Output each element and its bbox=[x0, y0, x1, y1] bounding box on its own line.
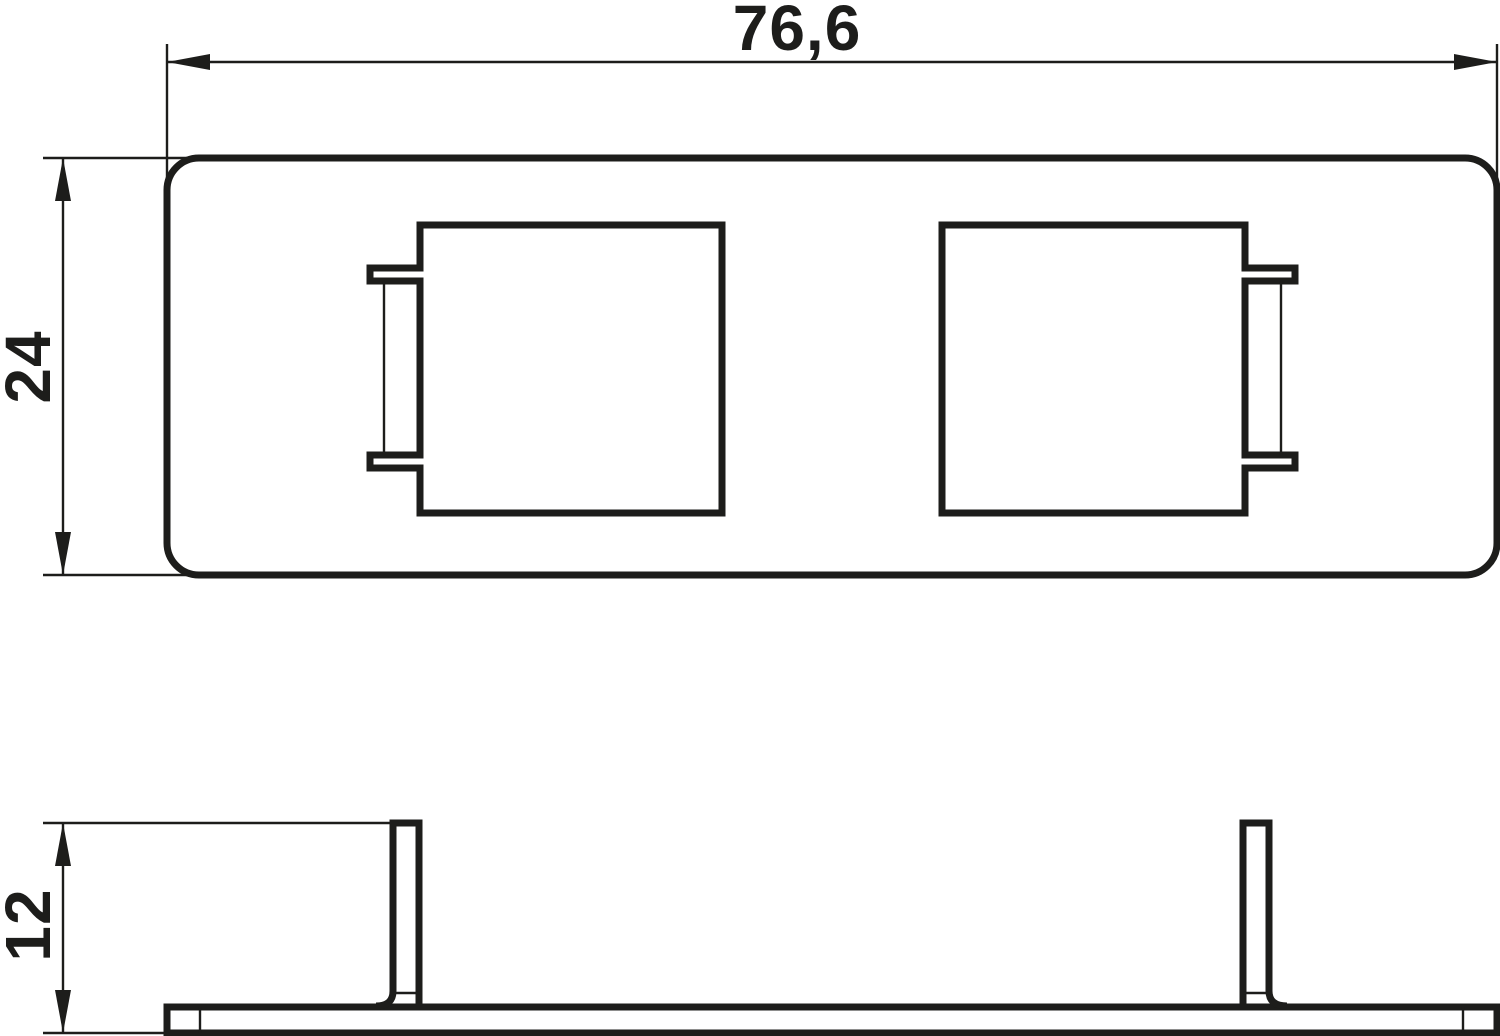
plate-dimension-drawing: 76,6 24 bbox=[0, 0, 1500, 1036]
top-view bbox=[167, 158, 1497, 575]
right-aperture-outline bbox=[942, 225, 1295, 513]
side-base-plate bbox=[167, 1007, 1497, 1033]
height-arrow-top-icon bbox=[55, 158, 71, 201]
width-arrow-right-icon bbox=[1454, 54, 1497, 70]
height-arrow-bottom-icon bbox=[55, 532, 71, 575]
depth-dimension: 12 bbox=[0, 823, 391, 1033]
width-arrow-left-icon bbox=[167, 54, 210, 70]
plate-outline bbox=[167, 158, 1497, 575]
depth-arrow-bottom-icon bbox=[55, 990, 71, 1033]
height-dimension-label: 24 bbox=[0, 330, 64, 403]
technical-drawing-page: 76,6 24 bbox=[0, 0, 1500, 1036]
depth-dimension-label: 12 bbox=[0, 888, 64, 961]
left-aperture-outline bbox=[370, 225, 722, 513]
width-dimension-label: 76,6 bbox=[733, 0, 862, 64]
side-view bbox=[167, 823, 1497, 1033]
depth-arrow-top-icon bbox=[55, 823, 71, 866]
right-latch-tab bbox=[1243, 823, 1287, 1008]
left-latch-tab bbox=[376, 823, 419, 1008]
